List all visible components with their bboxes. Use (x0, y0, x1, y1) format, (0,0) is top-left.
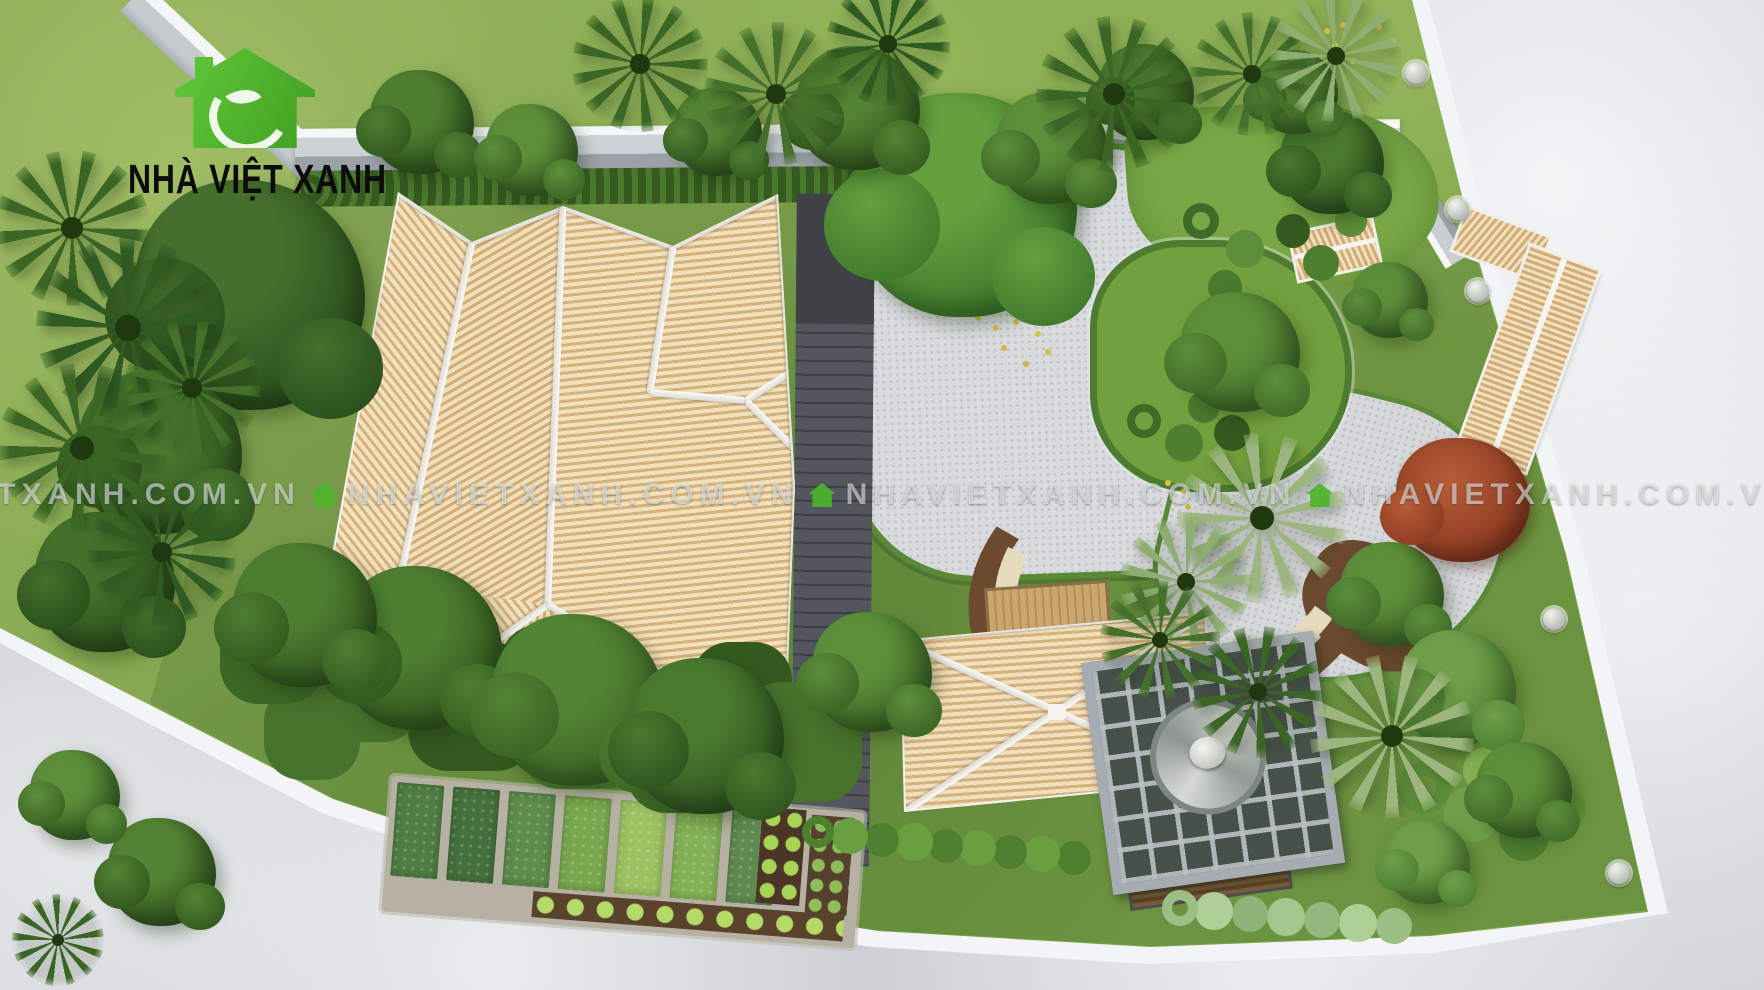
watermark-house-icon (311, 483, 338, 507)
palm-tree (1036, 16, 1192, 172)
watermark: NHAVIETXANH.COM.VN NHAVIETXANH.COM.VN NH… (0, 478, 1764, 512)
roof-apex (1048, 704, 1066, 720)
tree (1476, 742, 1572, 838)
tree (1386, 820, 1470, 904)
vegetable-bed (558, 795, 612, 892)
cabbage-bed (755, 807, 806, 906)
watermark-house-icon (1306, 483, 1333, 507)
pale-hedge-row (1172, 900, 1188, 916)
vegetable-bed (669, 804, 723, 901)
watermark-text: NHAVIETXANH.COM.VN (846, 478, 1297, 512)
tree (1180, 292, 1300, 412)
lawn-shrubs (1192, 212, 1210, 230)
watermark-text: NHAVIETXANH.COM.VN (348, 478, 799, 512)
logo-text: NHÀ VIỆT XANH (128, 156, 362, 203)
palm-tree (1310, 654, 1474, 818)
logo-house-icon (169, 48, 321, 148)
tree (30, 750, 120, 840)
vegetable-bed (614, 800, 668, 897)
vegetable-bed (502, 791, 556, 888)
watermark-text: NHAVIETXANH.COM.VN (1343, 478, 1764, 512)
tree (1340, 542, 1444, 646)
vegetable-bed (446, 786, 500, 883)
stone-urn (1467, 280, 1489, 302)
tree (812, 612, 932, 732)
watermark-house-icon (809, 483, 836, 507)
tree (486, 104, 578, 196)
dark-walkway (791, 194, 875, 867)
stone-urn (1608, 862, 1630, 884)
aerial-render: NHÀ VIỆT XANH NHAVIETXANH.COM.VN NHAVIET… (0, 0, 1764, 990)
island-shrubs (1135, 412, 1153, 430)
palm-tree (124, 320, 260, 456)
shrub-row (810, 824, 826, 840)
palm-tree (12, 894, 104, 986)
vegetable-bed (390, 782, 444, 879)
palm-tree (572, 0, 708, 132)
stone-urn (1405, 62, 1427, 84)
stone-urn (1543, 608, 1565, 630)
watermark-text: NHAVIETXANH.COM.VN (0, 478, 301, 512)
stone-urn (1447, 198, 1469, 220)
tree (233, 543, 377, 687)
brand-logo: NHÀ VIỆT XANH (95, 48, 395, 203)
tree (1352, 262, 1428, 338)
logo-leaf-icon (201, 69, 297, 160)
tree (628, 658, 784, 814)
palm-tree (1100, 580, 1220, 700)
